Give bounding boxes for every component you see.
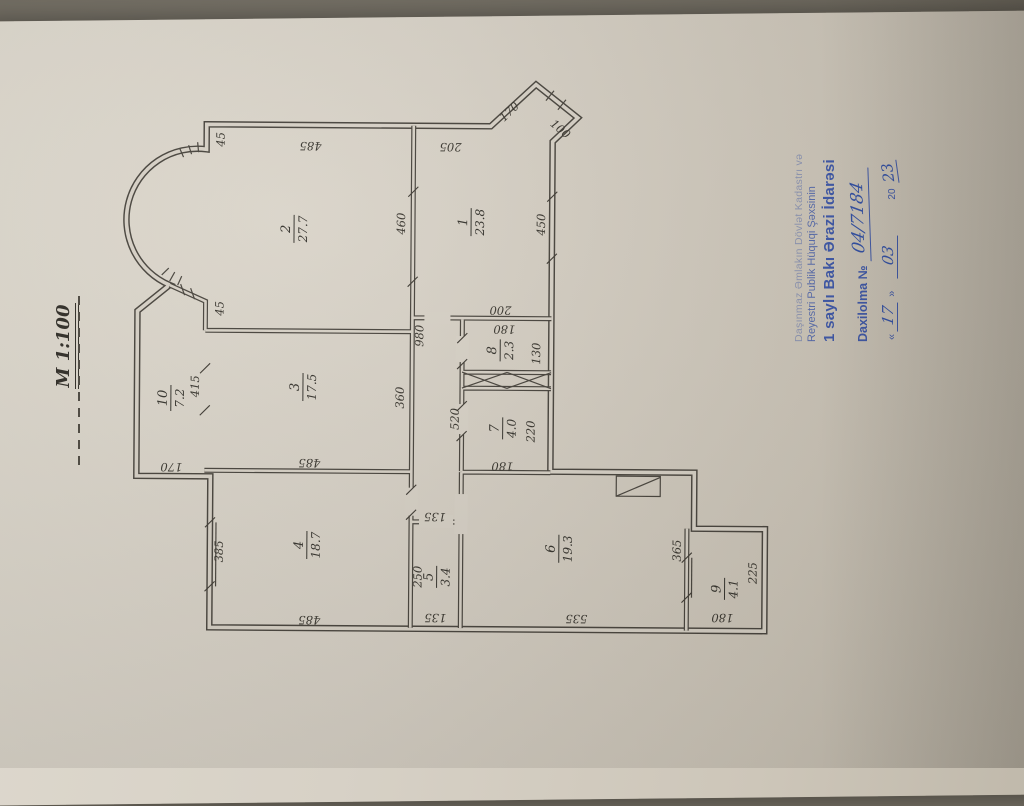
scale-text: M 1:100 <box>53 303 79 390</box>
room-area: 2.3 <box>502 340 516 361</box>
room-label: 1 23.8 <box>456 208 487 237</box>
room-area: 7.2 <box>173 389 187 408</box>
room-area: 18.7 <box>309 531 323 558</box>
room-number: 1 <box>456 218 471 226</box>
room-label: 6 19.3 <box>544 535 575 563</box>
dim-label: 415 <box>188 375 202 398</box>
dim-label: 170 <box>160 460 182 474</box>
room-number: 4 <box>292 541 307 550</box>
quote-open: « <box>886 334 898 340</box>
room-label: 9 4.1 <box>709 578 740 600</box>
dim-label: 135 <box>424 611 446 625</box>
dim-label: 135 <box>424 510 446 524</box>
room-number: 2 <box>279 225 294 234</box>
dim-label: 485 <box>298 456 321 470</box>
date-month-handwritten: 03 <box>879 232 898 278</box>
dim-label: 485 <box>300 139 323 153</box>
room-label: 8 2.3 <box>485 339 516 361</box>
dim-label: 180 <box>491 459 513 473</box>
dim-label: 200 <box>489 303 512 317</box>
entrance-threshold-symbol <box>616 476 660 496</box>
date-century-printed: 20 <box>887 188 898 199</box>
dim-label: 450 <box>534 214 548 237</box>
dim-label: 520 <box>448 408 462 430</box>
dim-label: 180 <box>711 611 733 625</box>
room-number: 8 <box>485 346 500 354</box>
room-label: 10 7.2 <box>156 385 187 411</box>
entry-number-handwritten: 04/7184 <box>846 164 871 261</box>
dim-label: 460 <box>394 213 408 236</box>
section-dashed-line <box>78 296 80 466</box>
dim-label: 205 <box>440 140 463 154</box>
room-number: 5 <box>422 573 437 581</box>
dim-label: 45 <box>212 301 226 317</box>
dim-label: 535 <box>565 612 587 626</box>
dim-label: 225 <box>746 562 760 585</box>
stamp-date-row: « 17 » 03 20 23 <box>879 72 898 342</box>
dim-label: 220 <box>524 421 538 444</box>
entry-number-label: Daxilolma № <box>856 266 870 342</box>
stamp-org-line-2: Reyestri Publik Hüquqi Şəxsinin <box>806 72 818 342</box>
stamp-entry-row: Daxilolma № 04/7184 <box>848 72 870 342</box>
room-number: 3 <box>288 383 303 391</box>
stamp-org-line-3: 1 saylı Bakı Ərazi İdarəsi <box>821 72 838 342</box>
room-label: 5 3.4 <box>422 566 453 588</box>
registry-stamp: Daşınmaz Əmlakın Dövlət Kadastrı və Reye… <box>793 72 943 342</box>
dim-label: 360 <box>393 387 407 409</box>
room-label: 4 18.7 <box>292 531 323 559</box>
interior-walls <box>167 124 689 631</box>
stamp-org-line-1: Daşınmaz Əmlakın Dövlət Kadastrı və <box>793 72 805 342</box>
dim-label: 45 <box>214 132 228 148</box>
date-year-handwritten: 23 <box>877 160 899 186</box>
dim-label: 180 <box>493 322 515 336</box>
dim-label: 385 <box>212 540 226 562</box>
room-area: 23.8 <box>473 208 487 236</box>
room-area: 3.4 <box>439 567 453 586</box>
room-labels: 1 23.8 2 27.7 3 17.5 4 18.7 5 <box>154 206 743 600</box>
room-area: 4.1 <box>726 579 740 599</box>
dim-label: 980 <box>412 325 426 347</box>
room-area: 19.3 <box>561 535 575 562</box>
room-number: 9 <box>710 585 725 593</box>
dim-label: 485 <box>298 613 321 627</box>
room-area: 27.7 <box>296 215 310 243</box>
room-number: 7 <box>488 423 503 432</box>
room-label: 3 17.5 <box>288 373 319 401</box>
room-label: 7 4.0 <box>488 417 519 439</box>
room-label: 2 27.7 <box>279 215 310 244</box>
room-area: 17.5 <box>305 374 319 401</box>
quote-close: » <box>886 291 898 297</box>
room-number: 6 <box>544 545 559 553</box>
dim-label: 100 <box>548 117 574 142</box>
room-number: 10 <box>156 390 171 407</box>
room-area: 4.0 <box>505 418 519 439</box>
dim-label: 130 <box>529 343 543 365</box>
date-day-handwritten: 17 <box>879 299 898 331</box>
dim-label: 365 <box>670 540 684 562</box>
dimension-ticks <box>198 185 694 602</box>
